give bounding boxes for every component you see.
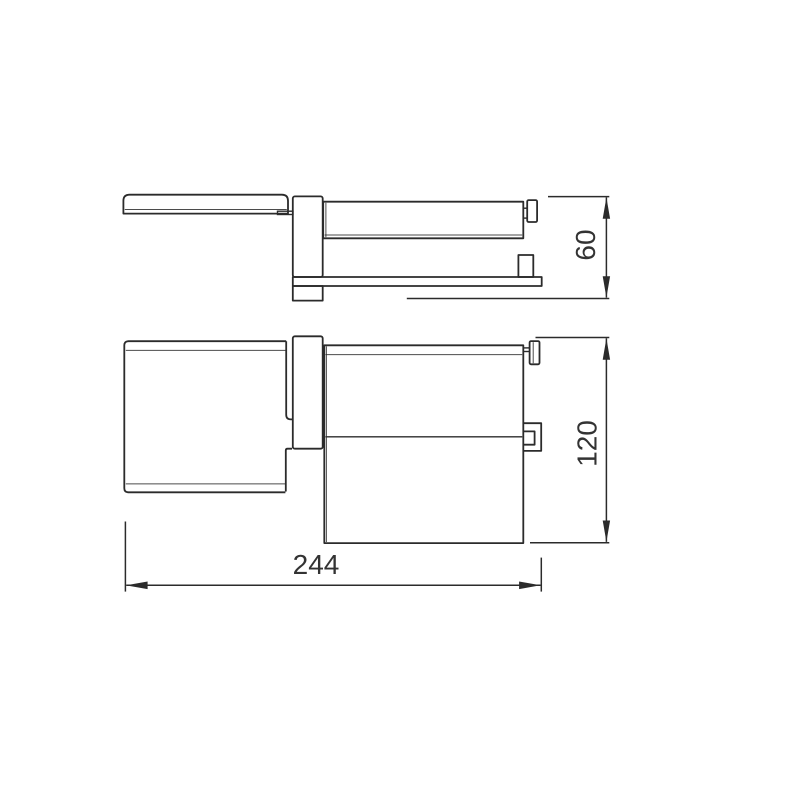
roller-end-cap-profile <box>527 200 537 222</box>
cover-front-outline <box>124 341 286 492</box>
dim-60-arrow-down <box>603 276 610 297</box>
mount-rail-profile <box>293 277 542 286</box>
dimension-width-244: 244 <box>125 522 541 592</box>
spindle-cap-front <box>530 341 540 364</box>
dim-120-arrow-up <box>603 338 610 359</box>
dim-244-label: 244 <box>293 549 340 580</box>
dimension-depth-60: 60 <box>407 197 610 299</box>
dim-120-label: 120 <box>572 420 603 467</box>
wall-clip-outer <box>524 423 541 451</box>
technical-drawing: 60 <box>0 0 800 800</box>
mount-bracket-front <box>293 336 323 448</box>
holder-body-front <box>324 345 523 543</box>
dim-244-arrow-right <box>519 582 540 590</box>
dim-120-arrow-down <box>603 521 610 542</box>
roller-profile <box>323 202 523 239</box>
cover-front-right-edge-lower <box>286 449 292 492</box>
wall-clip-inner <box>524 431 535 444</box>
front-view <box>124 336 541 543</box>
dim-60-arrow-up <box>603 197 610 218</box>
stop-pin-profile <box>518 255 533 277</box>
bracket-foot-profile <box>293 286 323 301</box>
dim-244-arrow-left <box>126 582 147 590</box>
cover-front-right-edge-upper <box>286 341 292 419</box>
dim-60-label: 60 <box>570 229 601 260</box>
cover-profile-outline <box>123 195 288 214</box>
top-view <box>123 195 541 301</box>
technical-drawing-page: 60 <box>0 0 800 800</box>
mount-bracket-profile <box>293 196 323 277</box>
